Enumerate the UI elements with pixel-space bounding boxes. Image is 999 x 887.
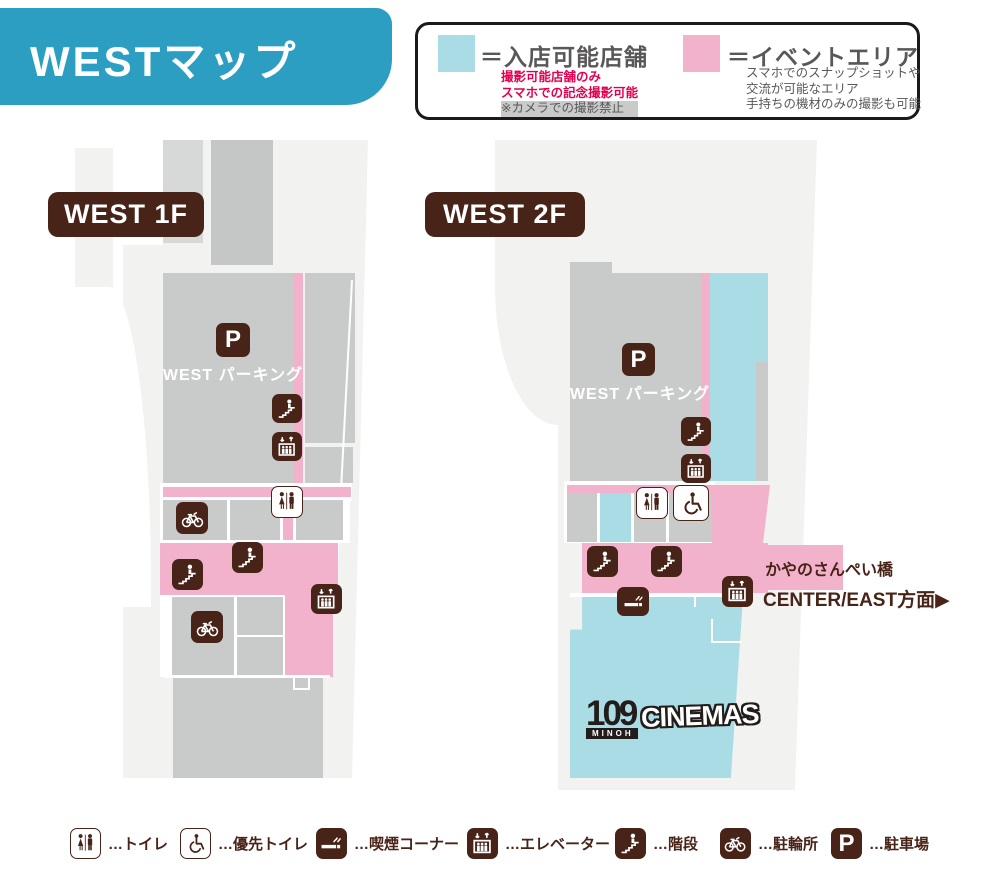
cinema-word: CINEMAS (640, 699, 759, 734)
direction-label: CENTER/EAST方面▶ (763, 585, 950, 612)
smoking-icon (316, 828, 347, 859)
cinema-logo-left: 109 MINOH (586, 699, 638, 739)
floor2-label: WEST 2F (425, 192, 585, 237)
stairs-icon (651, 546, 682, 577)
toilet-icon (70, 828, 101, 859)
event-legend-notes: スマホでのスナップショットや 交流が可能なエリア 手持ちの機材のみの撮影も可能 (746, 66, 921, 113)
floor2-block-row-a (567, 493, 597, 542)
stairs-icon (272, 394, 302, 423)
parking-icon: P (622, 343, 655, 376)
cinema-109: 109 (586, 699, 638, 729)
elevator-icon (467, 828, 498, 859)
floor2-notch-a (694, 597, 696, 607)
floor1-block-right-b (305, 447, 353, 483)
wheelchair-icon (180, 828, 211, 859)
floor1-label: WEST 1F (48, 192, 204, 237)
floor1-block-lower-m1 (237, 597, 283, 635)
bicycle-icon (176, 502, 208, 534)
bridge-label: かやのさんぺい橋 (765, 556, 893, 580)
floor2-notch-c (711, 641, 742, 643)
floor1-block-bottom (173, 678, 323, 778)
event-swatch (683, 35, 720, 72)
floor2-divider-line (570, 593, 745, 597)
bicycle-icon (720, 828, 751, 859)
cinema-minoh: MINOH (586, 728, 638, 739)
floor1-block-row-r (296, 500, 343, 540)
floor1-block-strip-b (211, 140, 273, 265)
smoking-icon (617, 587, 649, 616)
floor1-door-notch (293, 678, 310, 690)
event-note-2: 交流が可能なエリア (746, 82, 921, 98)
floor2-notch-b (711, 619, 713, 643)
stairs-icon (172, 559, 203, 590)
elevator-icon (681, 454, 711, 483)
toilet-icon (636, 487, 668, 519)
store-note-red-1: 撮影可能店舗のみ (501, 70, 638, 86)
floor2-event-right (712, 485, 770, 543)
stairs-icon (681, 417, 711, 446)
legend-item-parking: P …駐車場 (831, 828, 929, 859)
floor2-block-sliver (756, 362, 768, 481)
floor2-parking-label: WEST パーキング (565, 380, 715, 404)
legend-item-priority-toilet: …優先トイレ (180, 828, 308, 859)
legend-item-elevator: …エレベーター (467, 828, 610, 859)
event-note-1: スマホでのスナップショットや (746, 66, 921, 82)
toilet-icon (271, 486, 303, 518)
bicycle-icon (191, 611, 223, 643)
legend-item-toilet: …トイレ (70, 828, 168, 859)
parking-icon: P (831, 828, 862, 859)
floor1-block-lower-m2 (237, 637, 283, 675)
wheelchair-icon (673, 485, 709, 521)
west-map-page: WESTマップ ＝入店可能店舗 撮影可能店舗のみ スマホでの記念撮影可能 ※カメ… (0, 0, 999, 887)
legend-item-smoking: …喫煙コーナー (316, 828, 459, 859)
elevator-icon (272, 432, 302, 461)
floor2-parking-area (612, 273, 701, 481)
stairs-icon (587, 546, 618, 577)
store-legend-title: ＝入店可能店舗 (480, 38, 648, 72)
floor2-cinema-area (570, 597, 743, 778)
page-title: WESTマップ (30, 28, 298, 89)
floor2-store-small (600, 493, 631, 542)
store-note-red-2: スマホでの記念撮影可能 (501, 86, 638, 102)
cinema-logo: 109 MINOH CINEMAS (586, 699, 758, 739)
stairs-icon (232, 542, 263, 573)
floor1-event-band (163, 487, 351, 497)
parking-icon: P (216, 323, 250, 357)
floor2-road-curve (495, 287, 558, 425)
legend-item-bicycle: …駐輪所 (720, 828, 818, 859)
store-note-gray: ※カメラでの撮影禁止 (501, 101, 638, 117)
legend-item-stairs: …階段 (615, 828, 698, 859)
floor1-parking-label: WEST パーキング (158, 361, 308, 385)
store-legend-notes: 撮影可能店舗のみ スマホでの記念撮影可能 ※カメラでの撮影禁止 (501, 70, 638, 117)
floor2-parking-area-l (570, 262, 612, 481)
elevator-icon (311, 584, 342, 614)
stairs-icon (615, 828, 646, 859)
event-note-3: 手持ちの機材のみの撮影も可能 (746, 97, 921, 113)
store-swatch (438, 35, 475, 72)
elevator-icon (722, 576, 753, 607)
